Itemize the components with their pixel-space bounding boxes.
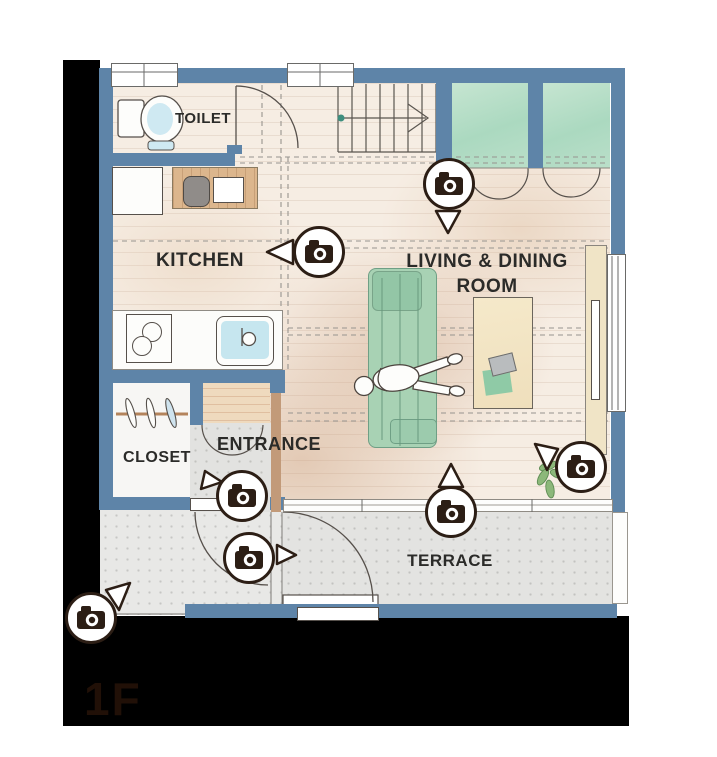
wall-toilet-stub bbox=[227, 145, 242, 154]
room-label-living-dining: LIVING & DINING ROOM bbox=[378, 249, 596, 299]
camera-icon bbox=[304, 239, 334, 265]
camera-icon bbox=[234, 545, 264, 571]
wall-left bbox=[99, 68, 113, 510]
entrance-step bbox=[297, 607, 379, 621]
sofa-ottoman bbox=[390, 419, 437, 444]
window-right bbox=[607, 254, 626, 412]
wall-right-lower bbox=[611, 412, 625, 512]
sink-basin bbox=[221, 321, 269, 359]
wall-kitchen bbox=[99, 370, 283, 383]
camera-marker-hall-view[interactable] bbox=[423, 158, 475, 210]
green-area-1 bbox=[452, 83, 528, 168]
camera-icon bbox=[436, 499, 466, 525]
room-label-toilet: TOILET bbox=[168, 110, 238, 127]
wall-entrance-left bbox=[190, 383, 203, 425]
desk-chair bbox=[183, 176, 210, 207]
wall-bottom bbox=[185, 604, 617, 618]
wall-closet bbox=[99, 497, 190, 510]
camera-icon bbox=[566, 454, 596, 480]
refrigerator bbox=[112, 167, 163, 215]
wall-green-divider bbox=[528, 68, 543, 168]
room-label-closet: CLOSET bbox=[118, 449, 196, 467]
window-top-2 bbox=[287, 63, 354, 87]
terrace-fence bbox=[612, 512, 628, 604]
room-label-living-line2: ROOM bbox=[378, 274, 596, 299]
closet-floor bbox=[113, 382, 190, 498]
wall-stairs-side bbox=[436, 68, 452, 168]
camera-marker-approach-view[interactable] bbox=[65, 592, 117, 644]
camera-marker-kitchen-view[interactable] bbox=[293, 226, 345, 278]
stove-burner bbox=[132, 336, 152, 356]
camera-marker-living-east-view[interactable] bbox=[555, 441, 607, 493]
room-label-entrance: ENTRANCE bbox=[208, 434, 330, 455]
camera-icon bbox=[434, 171, 464, 197]
television bbox=[591, 300, 600, 400]
green-area-2 bbox=[543, 83, 610, 168]
camera-marker-entrance-inner-view[interactable] bbox=[216, 470, 268, 522]
wall-right-upper bbox=[611, 68, 625, 254]
wall-entrance-right bbox=[270, 370, 285, 393]
entrance-wood-step bbox=[203, 380, 270, 423]
camera-marker-living-south-view[interactable] bbox=[425, 486, 477, 538]
floor-number-label: 1F bbox=[84, 672, 142, 726]
camera-icon bbox=[227, 483, 257, 509]
desk-laptop bbox=[213, 177, 244, 203]
camera-marker-entrance-outer-view[interactable] bbox=[223, 532, 275, 584]
floor-plan-page: TOILET KITCHEN LIVING & DINING ROOM ENTR… bbox=[0, 0, 717, 757]
camera-icon bbox=[76, 605, 106, 631]
window-top-1 bbox=[111, 63, 178, 87]
room-label-terrace: TERRACE bbox=[398, 551, 502, 571]
room-label-living-line1: LIVING & DINING bbox=[378, 249, 596, 274]
bottom-black-matte bbox=[63, 616, 629, 726]
wall-toilet bbox=[99, 153, 235, 166]
room-label-kitchen: KITCHEN bbox=[148, 250, 252, 272]
